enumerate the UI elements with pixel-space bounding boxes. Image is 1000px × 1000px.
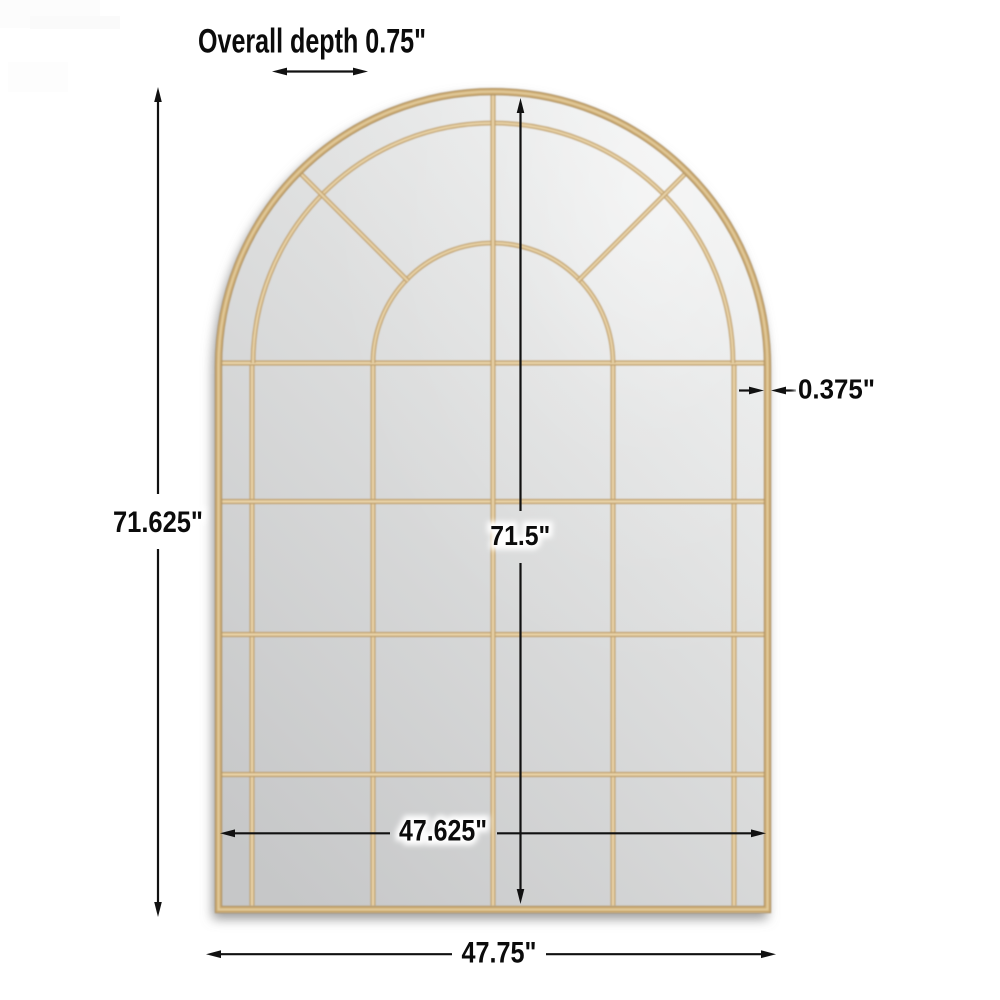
svg-text:47.75": 47.75" <box>462 937 537 970</box>
svg-text:Overall depth 0.75": Overall depth 0.75" <box>198 23 426 61</box>
svg-text:0.375": 0.375" <box>798 374 875 405</box>
svg-text:71.625": 71.625" <box>113 506 203 539</box>
svg-text:71.5": 71.5" <box>490 520 550 551</box>
svg-text:47.625": 47.625" <box>399 815 487 848</box>
